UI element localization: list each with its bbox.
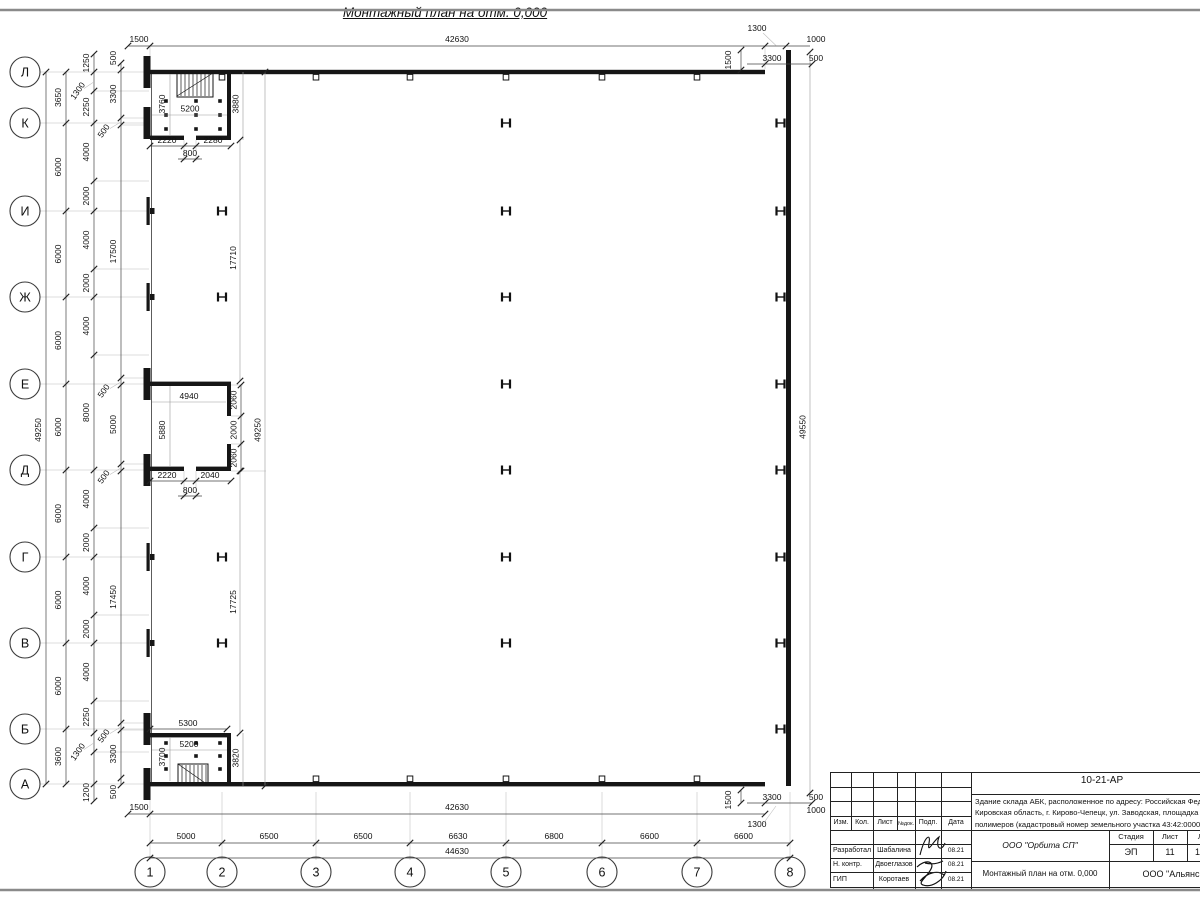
col-header-kol: Кол. bbox=[851, 819, 873, 827]
column-marker bbox=[503, 74, 509, 80]
leader-line bbox=[763, 806, 776, 824]
titleblock-gridline bbox=[971, 830, 1200, 831]
titleblock-gridline bbox=[971, 861, 1200, 862]
column-marker bbox=[164, 767, 168, 771]
dimension-label: 1250 bbox=[81, 53, 91, 72]
column-marker bbox=[164, 127, 168, 131]
titleblock-gridline bbox=[831, 844, 971, 845]
dimension-label: 2040 bbox=[201, 470, 220, 480]
dimension-label: 6630 bbox=[449, 831, 468, 841]
axis-label: В bbox=[21, 636, 29, 650]
dimension-label: 44630 bbox=[445, 846, 469, 856]
wall-pilaster bbox=[144, 107, 151, 139]
col-header-podp: Подп. bbox=[915, 819, 941, 827]
dimension-label: 4000 bbox=[81, 489, 91, 508]
sign-role: Разработал bbox=[833, 847, 873, 855]
dimension-label: 49250 bbox=[253, 418, 263, 442]
column-marker bbox=[218, 767, 222, 771]
dimension-label: 5200 bbox=[180, 739, 199, 749]
titleblock-gridline bbox=[831, 830, 971, 831]
stage-label: Стадия bbox=[1109, 833, 1153, 841]
dimension-label: 500 bbox=[108, 785, 118, 799]
stair-cut-line bbox=[178, 764, 208, 785]
dimension-label: 2220 bbox=[158, 135, 177, 145]
axis-label: 3 bbox=[313, 865, 320, 879]
dimension-label: 500 bbox=[95, 468, 111, 486]
sheet-value: 11 bbox=[1153, 848, 1187, 856]
sheets-label: Листов bbox=[1187, 833, 1200, 841]
dimension-label: 500 bbox=[95, 382, 111, 400]
dimension-label: 500 bbox=[108, 51, 118, 65]
axis-label: А bbox=[21, 777, 30, 791]
company-name: ООО "Альянс bbox=[1109, 870, 1200, 878]
dimension-label: 3650 bbox=[53, 88, 63, 107]
axis-label: 5 bbox=[503, 865, 510, 879]
dimension-label: 6000 bbox=[53, 504, 63, 523]
column-marker bbox=[218, 754, 222, 758]
description-line: Кировская область, г. Кирово-Чепецк, ул.… bbox=[975, 807, 1200, 818]
axis-label: 4 bbox=[407, 865, 414, 879]
dimension-label: 42630 bbox=[445, 802, 469, 812]
axis-label: 6 bbox=[599, 865, 606, 879]
column-marker bbox=[218, 99, 222, 103]
wall-pilaster bbox=[144, 768, 151, 800]
axis-label: Г bbox=[22, 550, 29, 564]
axis-label: 8 bbox=[787, 865, 794, 879]
col-header-data: Дата bbox=[941, 819, 971, 827]
axis-label: Ж bbox=[19, 290, 31, 304]
column bbox=[150, 294, 155, 300]
dimension-label: 2000 bbox=[81, 619, 91, 638]
dimension-label: 49250 bbox=[33, 418, 43, 442]
wall-pilaster bbox=[144, 368, 151, 400]
column-marker bbox=[599, 776, 605, 782]
titleblock-gridline bbox=[831, 816, 971, 817]
column-marker bbox=[218, 741, 222, 745]
dimension-label: 6800 bbox=[545, 831, 564, 841]
dimension-label: 8000 bbox=[81, 403, 91, 422]
room-wall bbox=[150, 382, 231, 386]
stage-value: ЭП bbox=[1109, 848, 1153, 856]
col-header-ndok: №док. bbox=[897, 820, 915, 828]
dimension-label: 4000 bbox=[81, 316, 91, 335]
leader-line bbox=[763, 33, 776, 46]
titleblock-gridline bbox=[1153, 830, 1154, 861]
dimension-label: 3300 bbox=[108, 84, 118, 103]
titleblock-gridline bbox=[1109, 830, 1110, 889]
titleblock-gridline bbox=[831, 787, 971, 788]
col-header-izm: Изм. bbox=[831, 819, 851, 827]
dimension-label: 500 bbox=[95, 122, 111, 140]
column-marker bbox=[407, 776, 413, 782]
project-description: Здание склада АБК, расположенное по адре… bbox=[975, 796, 1200, 830]
column-marker bbox=[194, 127, 198, 131]
dimension-label: 6000 bbox=[53, 676, 63, 695]
column bbox=[147, 283, 150, 311]
room-wall bbox=[150, 733, 231, 737]
dimension-label: 42630 bbox=[445, 34, 469, 44]
column-marker bbox=[219, 74, 225, 80]
dimension-label: 3300 bbox=[763, 53, 782, 63]
column-marker bbox=[313, 74, 319, 80]
stair-cut-line bbox=[177, 73, 213, 96]
column-marker bbox=[599, 74, 605, 80]
dimension-label: 17725 bbox=[228, 590, 238, 614]
dimension-label: 1000 bbox=[807, 34, 826, 44]
axis-label: Е bbox=[21, 377, 29, 391]
signature bbox=[913, 857, 949, 889]
column-marker bbox=[407, 74, 413, 80]
sign-name: Шабалина bbox=[873, 847, 915, 855]
dimension-label: 1500 bbox=[723, 50, 733, 69]
sign-name: Двоеглазов bbox=[873, 861, 915, 869]
column-marker bbox=[503, 776, 509, 782]
dimension-label: 2000 bbox=[81, 186, 91, 205]
dimension-label: 6000 bbox=[53, 331, 63, 350]
dimension-label: 5300 bbox=[179, 718, 198, 728]
dimension-label: 6500 bbox=[260, 831, 279, 841]
title-block: 10-21-АР Здание склада АБК, расположенно… bbox=[830, 772, 1200, 888]
dimension-label: 4000 bbox=[81, 662, 91, 681]
dimension-label: 800 bbox=[183, 485, 197, 495]
dimension-label: 1500 bbox=[723, 790, 733, 809]
dimension-label: 3300 bbox=[108, 744, 118, 763]
dimension-label: 1300 bbox=[68, 741, 87, 762]
axis-label: Л bbox=[21, 65, 29, 79]
col-header-list: Лист bbox=[873, 819, 897, 827]
sheet: { "sheet": { "title": "Монтажный план на… bbox=[0, 0, 1200, 900]
description-line: полимеров (кадастровый номер земельного … bbox=[975, 819, 1200, 830]
perimeter-wall-top bbox=[150, 70, 765, 74]
wall-pilaster bbox=[144, 56, 151, 88]
axis-label: 1 bbox=[147, 865, 154, 879]
dimension-label: 6500 bbox=[354, 831, 373, 841]
dimension-label: 6000 bbox=[53, 244, 63, 263]
axis-label: Д bbox=[21, 463, 30, 477]
dimension-label: 2060 bbox=[229, 390, 239, 409]
dimension-label: 1300 bbox=[748, 23, 767, 33]
titleblock-gridline bbox=[971, 794, 1200, 795]
dimension-label: 5880 bbox=[157, 420, 167, 439]
column-marker bbox=[694, 776, 700, 782]
dimension-label: 17450 bbox=[108, 585, 118, 609]
dimension-label: 3880 bbox=[231, 94, 241, 113]
dimension-label: 2000 bbox=[81, 273, 91, 292]
dimension-label: 500 bbox=[809, 53, 823, 63]
sign-name: Коротаев bbox=[873, 876, 915, 884]
titleblock-gridline bbox=[831, 801, 971, 802]
dimension-label: 6600 bbox=[734, 831, 753, 841]
dimension-label: 4000 bbox=[81, 576, 91, 595]
dimension-label: 2000 bbox=[81, 533, 91, 552]
dimension-label: 2220 bbox=[158, 470, 177, 480]
column-marker bbox=[194, 754, 198, 758]
axis-label: 7 bbox=[694, 865, 701, 879]
dimension-label: 6000 bbox=[53, 157, 63, 176]
column bbox=[150, 640, 155, 646]
dimension-label: 3600 bbox=[53, 747, 63, 766]
dimension-label: 2060 bbox=[229, 448, 239, 467]
dimension-label: 17710 bbox=[228, 246, 238, 270]
sign-role: ГИП bbox=[833, 876, 873, 884]
plan-drawing: ЛКИЖЕДГВБА123456783760520038802220228080… bbox=[0, 0, 1200, 900]
sheet-label: Лист bbox=[1153, 833, 1187, 841]
dimension-label: 2250 bbox=[81, 97, 91, 116]
dimension-label: 49550 bbox=[798, 415, 808, 439]
dimension-label: 1200 bbox=[81, 783, 91, 802]
titleblock-gridline bbox=[831, 858, 971, 859]
dimension-label: 4000 bbox=[81, 230, 91, 249]
column bbox=[150, 554, 155, 560]
titleblock-gridline bbox=[1109, 844, 1200, 845]
dimension-label: 5000 bbox=[177, 831, 196, 841]
column bbox=[147, 629, 150, 657]
column-marker bbox=[194, 99, 198, 103]
perimeter-wall-right bbox=[786, 50, 791, 786]
axis-label: И bbox=[21, 204, 30, 218]
perimeter-wall-bottom bbox=[150, 782, 765, 786]
dimension-label: 1300 bbox=[748, 819, 767, 829]
dimension-label: 17500 bbox=[108, 239, 118, 263]
description-line: Здание склада АБК, расположенное по адре… bbox=[975, 796, 1200, 807]
axis-label: 2 bbox=[219, 865, 226, 879]
column-marker bbox=[218, 127, 222, 131]
axis-label: Б bbox=[21, 722, 29, 736]
column bbox=[147, 543, 150, 571]
dimension-label: 3300 bbox=[763, 792, 782, 802]
dimension-label: 6600 bbox=[640, 831, 659, 841]
dimension-label: 500 bbox=[809, 792, 823, 802]
dimension-label: 5000 bbox=[108, 415, 118, 434]
dimension-label: 2280 bbox=[204, 135, 223, 145]
dimension-label: 3700 bbox=[157, 747, 167, 766]
dimension-label: 2250 bbox=[81, 707, 91, 726]
dimension-label: 500 bbox=[95, 727, 111, 745]
dimension-label: 1500 bbox=[130, 802, 149, 812]
sheets-value: 1 bbox=[1187, 848, 1200, 856]
dimension-label: 1000 bbox=[807, 805, 826, 815]
dimension-label: 2000 bbox=[229, 420, 239, 439]
titleblock-gridline bbox=[1187, 830, 1188, 861]
drawing-name: Монтажный план на отм. 0,000 bbox=[971, 870, 1109, 878]
dimension-label: 1500 bbox=[130, 34, 149, 44]
dimension-label: 6000 bbox=[53, 590, 63, 609]
dimension-label: 5200 bbox=[181, 104, 200, 114]
sign-role: Н. контр. bbox=[833, 861, 873, 869]
titleblock-gridline bbox=[831, 872, 971, 873]
dimension-label: 800 bbox=[183, 148, 197, 158]
column-marker bbox=[164, 741, 168, 745]
column bbox=[150, 208, 155, 214]
dimension-label: 3760 bbox=[157, 94, 167, 113]
org-name: ООО "Орбита СП" bbox=[971, 841, 1109, 849]
dimension-label: 6000 bbox=[53, 417, 63, 436]
dimension-label: 4940 bbox=[180, 391, 199, 401]
axis-label: К bbox=[21, 116, 29, 130]
column bbox=[147, 197, 150, 225]
column-marker bbox=[313, 776, 319, 782]
titleblock-gridline bbox=[971, 773, 972, 889]
column-marker bbox=[694, 74, 700, 80]
dimension-label: 4000 bbox=[81, 142, 91, 161]
dimension-label: 3820 bbox=[231, 748, 241, 767]
doc-number: 10-21-АР bbox=[971, 777, 1200, 785]
